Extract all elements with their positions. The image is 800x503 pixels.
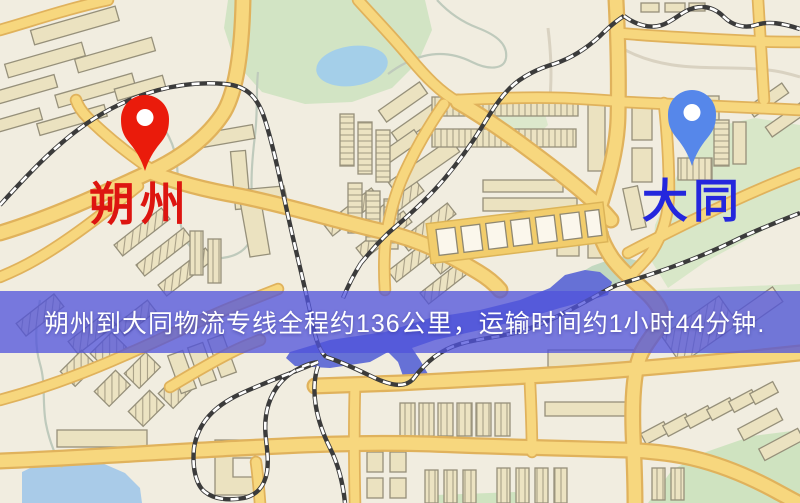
map-canvas: 朔州 大同 [0, 0, 800, 503]
destination-label: 大同 [642, 175, 744, 227]
map-screenshot: 朔州 大同 朔州到大同物流专线全程约136公里，运输时间约1小时44分钟. [0, 0, 800, 503]
route-info-banner: 朔州到大同物流专线全程约136公里，运输时间约1小时44分钟. [0, 291, 800, 353]
route-info-text: 朔州到大同物流专线全程约136公里，运输时间约1小时44分钟. [44, 304, 765, 340]
pin-hole [684, 104, 701, 121]
pin-hole [137, 109, 154, 126]
origin-label: 朔州 [89, 178, 191, 230]
